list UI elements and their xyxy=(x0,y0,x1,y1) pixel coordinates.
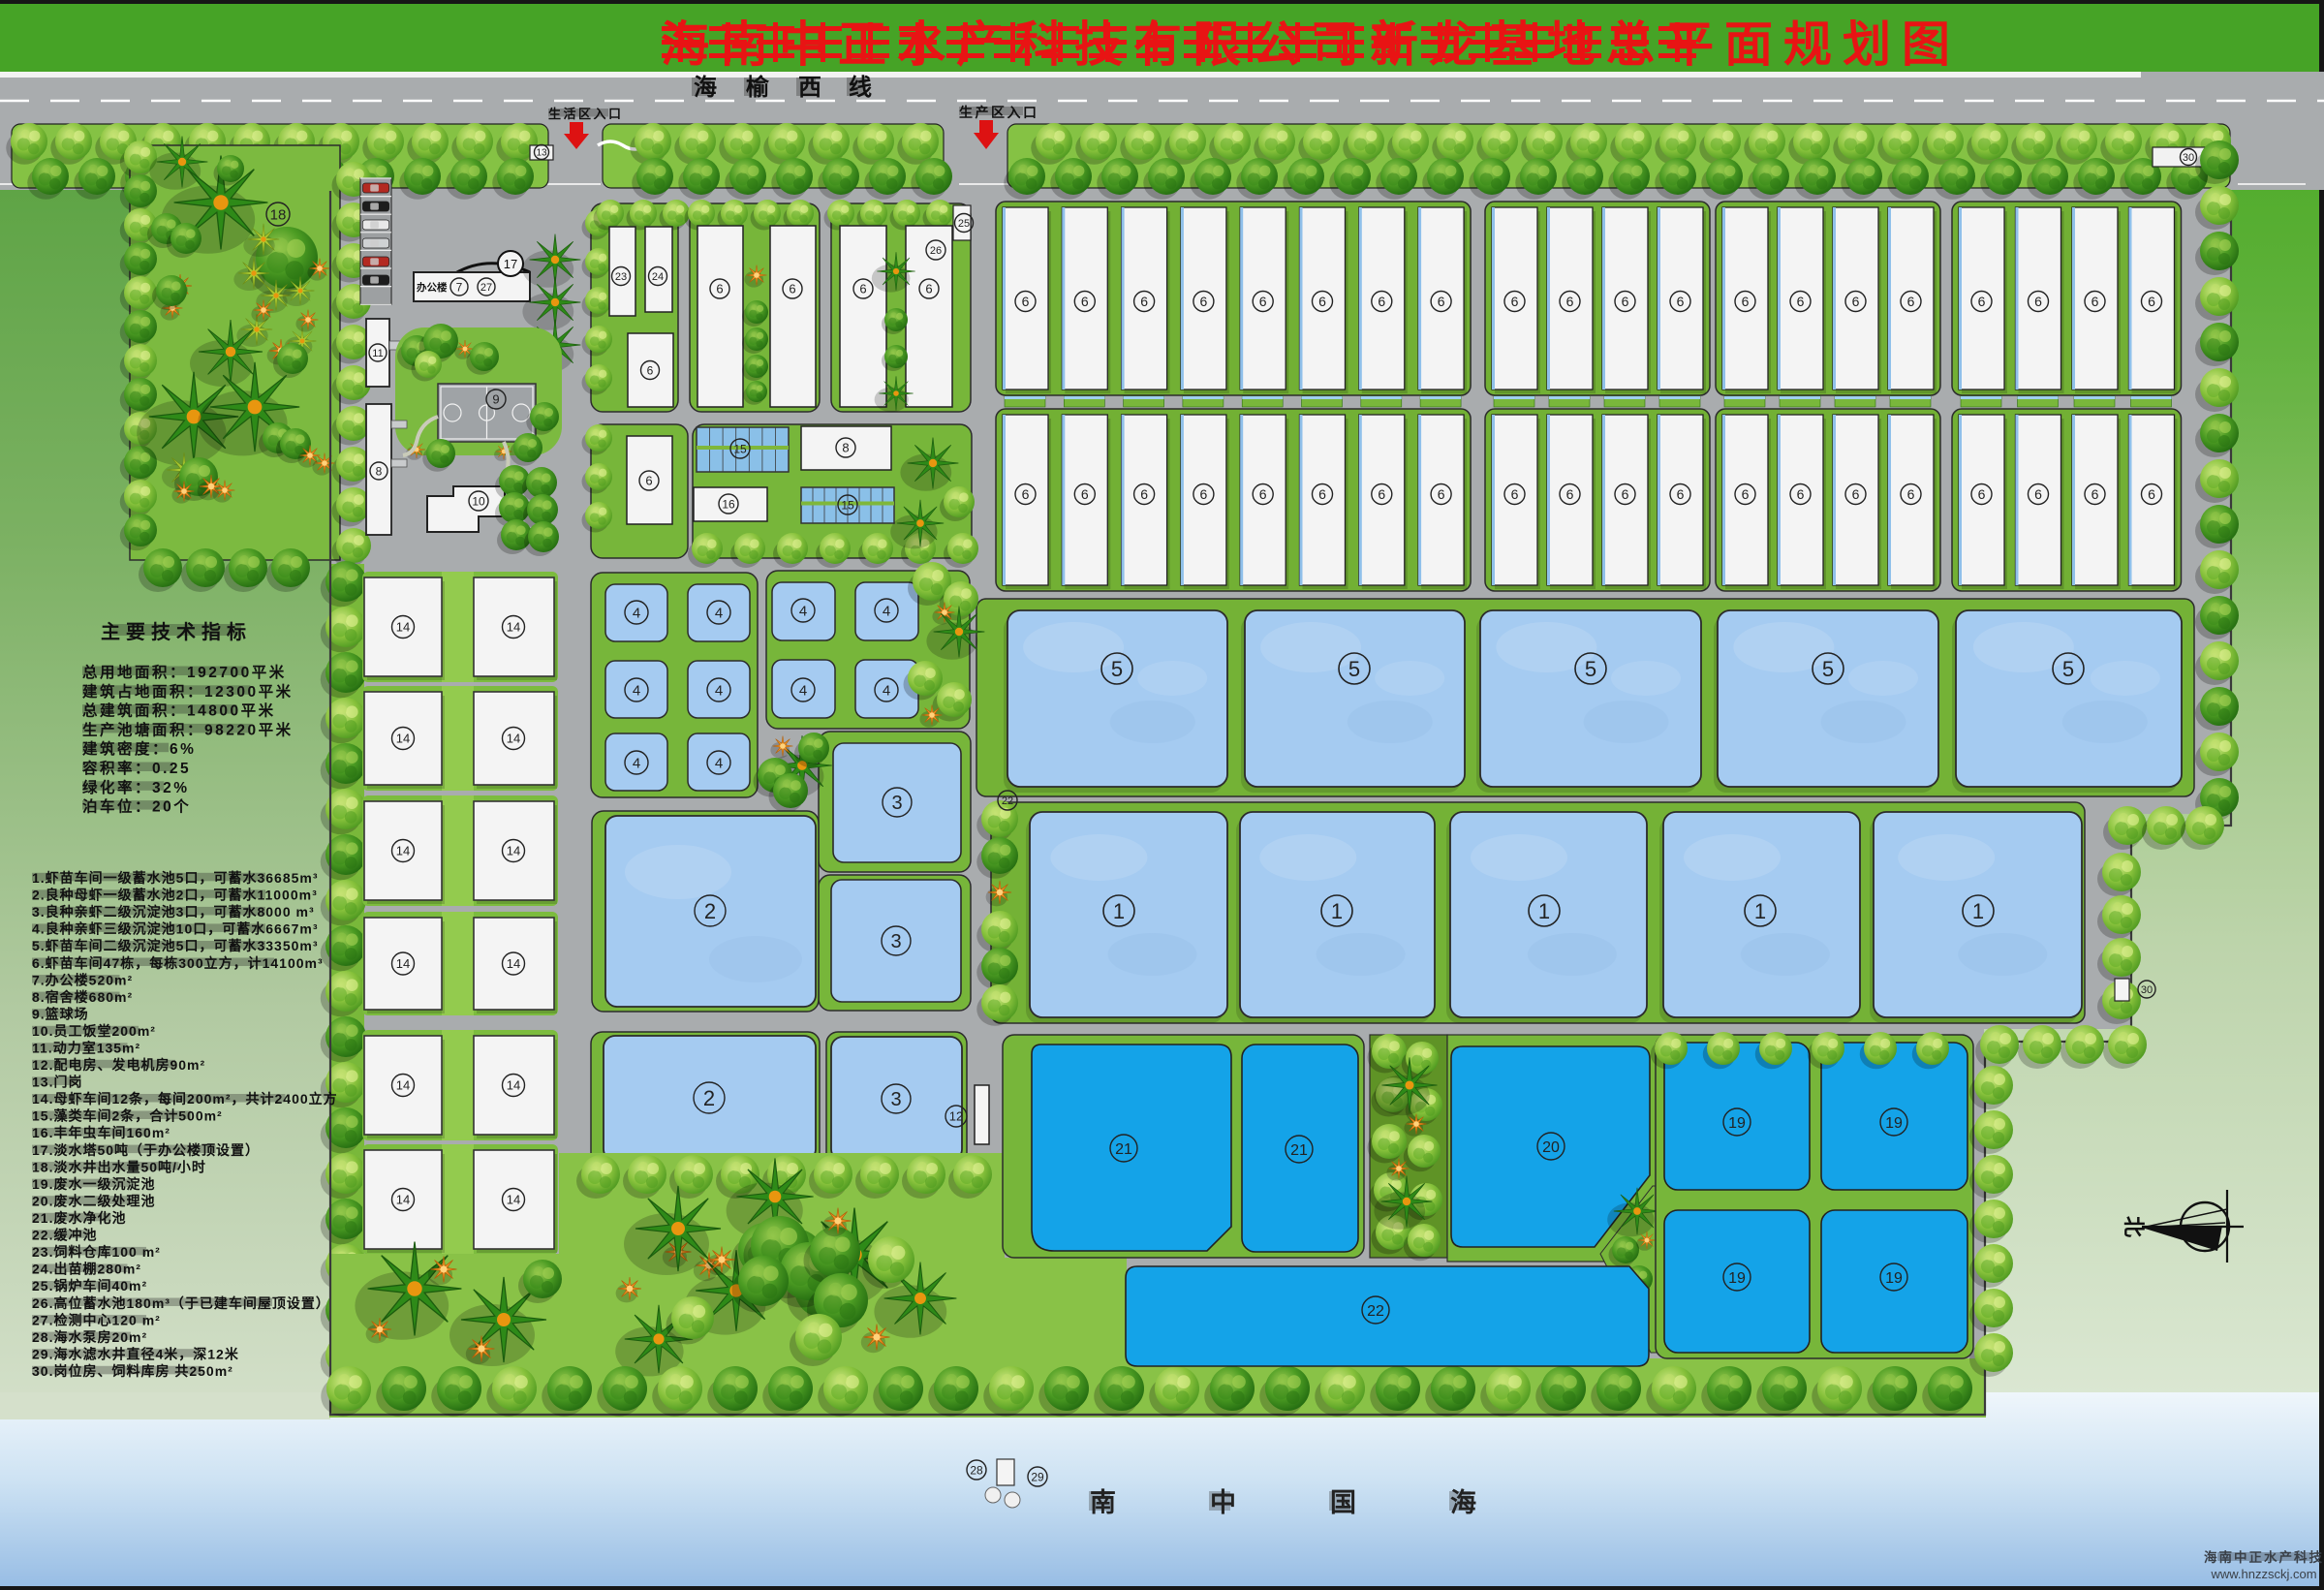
svg-text:22: 22 xyxy=(1367,1303,1384,1320)
svg-text:榆: 榆 xyxy=(746,74,770,101)
svg-text:6: 6 xyxy=(1622,486,1629,502)
svg-text:6: 6 xyxy=(1081,294,1089,309)
svg-text:20.废水二级处理池: 20.废水二级处理池 xyxy=(32,1194,155,1209)
svg-text:15: 15 xyxy=(841,498,854,512)
svg-text:7.办公楼520m²: 7.办公楼520m² xyxy=(32,972,133,987)
svg-text:线: 线 xyxy=(849,75,872,101)
svg-text:23.饲料仓库100 m²: 23.饲料仓库100 m² xyxy=(32,1244,161,1260)
svg-text:6: 6 xyxy=(1511,294,1519,309)
svg-text:生活区入口: 生活区入口 xyxy=(548,107,624,121)
svg-text:3.良种亲虾二级沉淀池3口，可蓄水8000 m³: 3.良种亲虾二级沉淀池3口，可蓄水8000 m³ xyxy=(32,904,315,920)
svg-text:15.藻类车间2条，合计500m²: 15.藻类车间2条，合计500m² xyxy=(32,1108,223,1124)
svg-text:6: 6 xyxy=(1742,294,1750,309)
svg-text:8: 8 xyxy=(376,464,383,478)
svg-text:6: 6 xyxy=(1438,486,1445,502)
svg-text:建筑占地面积：12300平米: 建筑占地面积：12300平米 xyxy=(82,682,294,701)
svg-text:主要技术指标: 主要技术指标 xyxy=(101,620,252,643)
svg-text:19: 19 xyxy=(1728,1115,1746,1132)
svg-text:建筑密度：6%: 建筑密度：6% xyxy=(82,739,196,758)
svg-text:6: 6 xyxy=(1318,294,1326,309)
svg-text:6: 6 xyxy=(1022,294,1030,309)
svg-text:14: 14 xyxy=(396,844,410,858)
svg-text:14: 14 xyxy=(507,732,520,746)
svg-text:14: 14 xyxy=(507,844,520,858)
svg-text:9.篮球场: 9.篮球场 xyxy=(32,1006,89,1021)
svg-text:8: 8 xyxy=(842,441,849,455)
svg-text:19: 19 xyxy=(1728,1270,1746,1287)
svg-text:绿化率：32%: 绿化率：32% xyxy=(82,778,190,796)
svg-text:2: 2 xyxy=(704,899,716,923)
svg-text:4: 4 xyxy=(883,682,890,699)
svg-text:6: 6 xyxy=(2034,486,2042,502)
svg-text:19.废水一级沉淀池: 19.废水一级沉淀池 xyxy=(32,1176,155,1192)
svg-text:北: 北 xyxy=(2122,1216,2146,1237)
svg-text:26.高位蓄水池180m³（于已建车间屋顶设置）: 26.高位蓄水池180m³（于已建车间屋顶设置） xyxy=(32,1295,330,1311)
svg-text:11.动力室135m²: 11.动力室135m² xyxy=(32,1041,140,1056)
svg-text:27.检测中心120 m²: 27.检测中心120 m² xyxy=(32,1312,161,1327)
svg-text:20: 20 xyxy=(1542,1139,1560,1156)
svg-text:28.海水泵房20m²: 28.海水泵房20m² xyxy=(32,1329,147,1345)
svg-text:1: 1 xyxy=(1972,899,1984,923)
svg-text:16: 16 xyxy=(722,497,735,511)
svg-text:24.出苗棚280m²: 24.出苗棚280m² xyxy=(32,1262,141,1277)
svg-text:1: 1 xyxy=(1754,899,1766,923)
svg-text:6: 6 xyxy=(1852,294,1860,309)
svg-text:6: 6 xyxy=(1566,294,1574,309)
svg-text:6: 6 xyxy=(1797,486,1805,502)
svg-text:27: 27 xyxy=(480,282,492,294)
svg-text:6: 6 xyxy=(1200,294,1208,309)
svg-text:9: 9 xyxy=(492,392,499,407)
svg-text:6: 6 xyxy=(1907,294,1915,309)
svg-text:28: 28 xyxy=(970,1463,983,1477)
svg-text:4: 4 xyxy=(633,755,640,771)
svg-text:30: 30 xyxy=(2183,152,2194,164)
svg-text:西: 西 xyxy=(798,75,821,101)
svg-text:容积率：0.25: 容积率：0.25 xyxy=(81,759,191,777)
svg-text:6: 6 xyxy=(1259,486,1267,502)
svg-text:6: 6 xyxy=(1378,294,1385,309)
svg-text:4: 4 xyxy=(715,682,723,699)
svg-text:6: 6 xyxy=(1797,294,1805,309)
svg-text:24: 24 xyxy=(652,271,664,283)
svg-text:6: 6 xyxy=(1200,486,1208,502)
svg-text:4: 4 xyxy=(633,605,640,621)
svg-text:海南中正水产科技: 海南中正水产科技 xyxy=(2204,1549,2324,1565)
svg-text:10: 10 xyxy=(472,494,485,508)
svg-text:6: 6 xyxy=(1378,486,1385,502)
svg-text:4: 4 xyxy=(799,603,807,619)
svg-text:海南中正水产科技有限公司新龙基地总平面规划图: 海南中正水产科技有限公司新龙基地总平面规划图 xyxy=(661,17,1961,72)
svg-text:2.良种母虾一级蓄水池2口，可蓄水11000m³: 2.良种母虾一级蓄水池2口，可蓄水11000m³ xyxy=(32,888,318,903)
svg-text:26: 26 xyxy=(930,245,942,257)
svg-text:6: 6 xyxy=(1852,486,1860,502)
svg-text:中: 中 xyxy=(1210,1488,1236,1517)
svg-text:海: 海 xyxy=(1450,1488,1476,1517)
svg-text:3: 3 xyxy=(891,793,902,814)
svg-text:生产区入口: 生产区入口 xyxy=(959,105,1039,120)
svg-text:6: 6 xyxy=(1677,486,1685,502)
svg-text:6: 6 xyxy=(1622,294,1629,309)
svg-text:2: 2 xyxy=(703,1086,715,1110)
svg-text:6: 6 xyxy=(1140,486,1148,502)
svg-text:6: 6 xyxy=(1259,294,1267,309)
svg-text:8.宿舍楼680m²: 8.宿舍楼680m² xyxy=(32,989,133,1005)
svg-text:10.员工饭堂200m²: 10.员工饭堂200m² xyxy=(32,1023,156,1039)
svg-text:14: 14 xyxy=(507,956,520,971)
svg-text:6.虾苗车间47栋，每栋300立方，计14100m³: 6.虾苗车间47栋，每栋300立方，计14100m³ xyxy=(32,955,324,971)
svg-text:4: 4 xyxy=(715,755,723,771)
svg-text:6: 6 xyxy=(1907,486,1915,502)
svg-text:6: 6 xyxy=(1140,294,1148,309)
svg-text:总用地面积：192700平米: 总用地面积：192700平米 xyxy=(82,663,287,681)
svg-text:6: 6 xyxy=(716,282,723,296)
svg-text:7: 7 xyxy=(456,280,463,294)
svg-text:1: 1 xyxy=(1331,899,1343,923)
svg-text:14: 14 xyxy=(396,956,410,971)
svg-text:6: 6 xyxy=(2034,294,2042,309)
svg-text:25: 25 xyxy=(958,218,970,230)
svg-text:14: 14 xyxy=(396,1078,410,1093)
svg-text:南: 南 xyxy=(1090,1488,1116,1517)
svg-text:21: 21 xyxy=(1115,1141,1132,1158)
svg-text:14.母虾车间12条，每间200m²，共计2400立方: 14.母虾车间12条，每间200m²，共计2400立方 xyxy=(32,1091,338,1107)
svg-text:5: 5 xyxy=(1348,657,1360,681)
svg-text:3: 3 xyxy=(890,1089,901,1110)
svg-text:29: 29 xyxy=(1031,1470,1044,1483)
svg-text:6: 6 xyxy=(1438,294,1445,309)
svg-text:14: 14 xyxy=(507,1193,520,1207)
svg-text:23: 23 xyxy=(615,271,627,283)
svg-text:6: 6 xyxy=(2092,294,2099,309)
svg-text:6: 6 xyxy=(1566,486,1574,502)
svg-text:5.虾苗车间二级沉淀池5口，可蓄水33350m³: 5.虾苗车间二级沉淀池5口，可蓄水33350m³ xyxy=(32,938,319,953)
svg-text:1: 1 xyxy=(1113,899,1125,923)
svg-text:4: 4 xyxy=(633,682,640,699)
svg-text:6: 6 xyxy=(1022,486,1030,502)
svg-text:22.缓冲池: 22.缓冲池 xyxy=(32,1228,97,1243)
svg-text:14: 14 xyxy=(507,1078,520,1093)
svg-text:总建筑面积：14800平米: 总建筑面积：14800平米 xyxy=(82,701,276,720)
svg-text:海: 海 xyxy=(694,74,717,101)
svg-text:6: 6 xyxy=(859,282,866,296)
svg-text:国: 国 xyxy=(1330,1488,1356,1517)
svg-text:14: 14 xyxy=(396,732,410,746)
svg-text:4: 4 xyxy=(883,603,890,619)
svg-text:6: 6 xyxy=(647,363,654,377)
svg-text:6: 6 xyxy=(2148,294,2155,309)
svg-text:5: 5 xyxy=(1585,657,1596,681)
svg-text:14: 14 xyxy=(396,620,410,635)
svg-text:30: 30 xyxy=(2141,984,2153,996)
svg-text:5: 5 xyxy=(1111,657,1123,681)
svg-text:1.虾苗车间一级蓄水池5口，可蓄水36685m³: 1.虾苗车间一级蓄水池5口，可蓄水36685m³ xyxy=(32,870,319,886)
svg-text:29.海水滤水井直径4米，深12米: 29.海水滤水井直径4米，深12米 xyxy=(32,1346,239,1361)
svg-text:18.淡水井出水量50吨/小时: 18.淡水井出水量50吨/小时 xyxy=(32,1159,206,1174)
svg-text:17.淡水塔50吨（于办公楼顶设置）: 17.淡水塔50吨（于办公楼顶设置） xyxy=(32,1142,260,1158)
svg-text:30.岗位房、饲料库房 共250m²: 30.岗位房、饲料库房 共250m² xyxy=(32,1363,233,1379)
svg-text:生产池塘面积：98220平米: 生产池塘面积：98220平米 xyxy=(82,720,294,738)
svg-text:13.门岗: 13.门岗 xyxy=(32,1075,82,1090)
svg-text:25.锅炉车间40m²: 25.锅炉车间40m² xyxy=(32,1278,147,1294)
svg-text:16.丰年虫车间160m²: 16.丰年虫车间160m² xyxy=(32,1125,170,1140)
svg-text:6: 6 xyxy=(2148,486,2155,502)
svg-text:6: 6 xyxy=(1742,486,1750,502)
svg-text:3: 3 xyxy=(890,931,901,952)
svg-text:14: 14 xyxy=(396,1193,410,1207)
svg-text:4: 4 xyxy=(715,605,723,621)
svg-text:6: 6 xyxy=(2092,486,2099,502)
svg-text:6: 6 xyxy=(1318,486,1326,502)
svg-text:14: 14 xyxy=(507,620,520,635)
svg-text:6: 6 xyxy=(789,282,795,296)
svg-text:6: 6 xyxy=(925,282,932,296)
svg-text:12: 12 xyxy=(949,1109,963,1124)
svg-text:4.良种亲虾三级沉淀池10口，可蓄水6667m³: 4.良种亲虾三级沉淀池10口，可蓄水6667m³ xyxy=(32,921,319,937)
svg-text:21: 21 xyxy=(1290,1142,1308,1159)
svg-text:6: 6 xyxy=(1677,294,1685,309)
svg-text:6: 6 xyxy=(1978,294,1986,309)
svg-text:13: 13 xyxy=(536,148,547,159)
svg-text:19: 19 xyxy=(1885,1270,1903,1287)
svg-text:15: 15 xyxy=(733,442,747,455)
svg-text:www.hnzzsckj.com: www.hnzzsckj.com xyxy=(2210,1567,2316,1581)
svg-text:17: 17 xyxy=(504,257,517,271)
svg-text:5: 5 xyxy=(1822,657,1834,681)
svg-text:办公楼: 办公楼 xyxy=(417,281,448,294)
svg-text:6: 6 xyxy=(1511,486,1519,502)
svg-text:4: 4 xyxy=(799,682,807,699)
svg-text:1: 1 xyxy=(1538,899,1550,923)
svg-text:泊车位：20个: 泊车位：20个 xyxy=(82,797,191,816)
svg-text:6: 6 xyxy=(1978,486,1986,502)
svg-text:12.配电房、发电机房90m²: 12.配电房、发电机房90m² xyxy=(32,1057,205,1073)
svg-text:6: 6 xyxy=(1081,486,1089,502)
svg-text:5: 5 xyxy=(2062,657,2074,681)
svg-text:21.废水净化池: 21.废水净化池 xyxy=(32,1210,126,1226)
svg-text:6: 6 xyxy=(645,474,652,488)
svg-text:18: 18 xyxy=(270,206,287,223)
svg-text:22: 22 xyxy=(1002,795,1013,807)
svg-text:11: 11 xyxy=(372,348,383,359)
svg-text:19: 19 xyxy=(1885,1115,1903,1132)
